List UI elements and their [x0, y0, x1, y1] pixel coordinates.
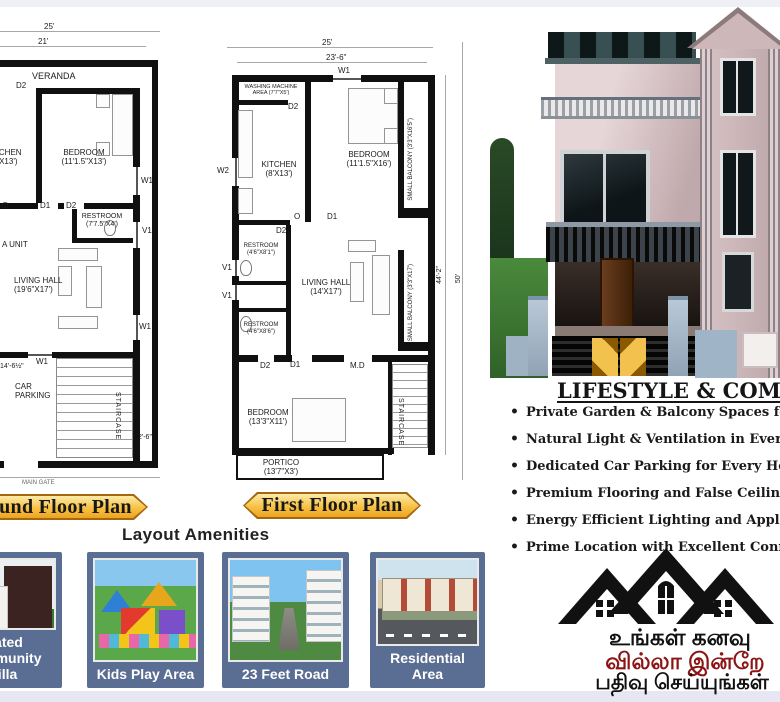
wall — [232, 281, 288, 285]
room-label-small-balcony-1: SMALL BALCONY (3'3"X16'5") — [408, 118, 415, 201]
window-mullion — [736, 150, 738, 238]
room-label-bedroom-2: BEDROOM (13'3"X11') — [238, 408, 298, 426]
dim-label: 2'-6" — [138, 434, 152, 442]
marker-w1: W1 — [36, 357, 48, 366]
pillow — [384, 88, 398, 104]
compound-wall — [506, 336, 530, 376]
bullet-icon: • — [510, 458, 526, 474]
apartment-block — [306, 570, 343, 642]
room-label-restroom: RESTROOM (7'7.5"X4') — [74, 213, 130, 229]
gate-gold-panel — [592, 338, 618, 376]
marker-w1: W1 — [141, 176, 153, 185]
dim-line — [462, 42, 463, 480]
sofa — [58, 316, 98, 329]
lifestyle-bullet: Private Garden & Balcony Spaces for Ever… — [526, 405, 780, 420]
residential-area-photo — [376, 558, 479, 646]
wall — [36, 88, 42, 209]
balcony-railing — [546, 222, 702, 262]
pillow — [384, 128, 398, 144]
wall — [232, 100, 288, 105]
road-markings — [386, 634, 476, 637]
dim-line — [0, 46, 146, 47]
wall — [232, 308, 288, 312]
wall — [398, 82, 404, 208]
ground-floor-banner: Ground Floor Plan — [0, 494, 148, 520]
amenity-card-kids-play: Kids Play Area — [87, 552, 204, 688]
lifestyle-bullet: Natural Light & Ventilation in Every Roo… — [526, 432, 780, 447]
walk-path — [278, 608, 300, 650]
dim-label: 50' — [455, 274, 463, 283]
first-floor-banner: First Floor Plan — [243, 492, 421, 519]
room-label-restroom-1: RESTROOM (4'6"X8'1") — [238, 243, 284, 257]
toilet — [240, 260, 252, 276]
roof-edge — [545, 58, 701, 64]
lifestyle-heading: LIFESTYLE & COMFORT — [557, 378, 780, 403]
promo-line-3: பதிவு செய்யுங்கள் — [552, 671, 780, 697]
dim-label: 44'-2" — [436, 266, 444, 284]
wall — [428, 75, 435, 455]
side-table — [96, 94, 110, 108]
gate-pillar — [668, 296, 688, 376]
sofa — [372, 255, 390, 315]
bullet-icon: • — [510, 512, 526, 528]
wall — [398, 250, 404, 342]
wall — [0, 60, 158, 67]
villa-building — [4, 566, 52, 630]
gate-gap — [4, 461, 38, 468]
amenity-card-label: Residential Area — [376, 646, 479, 682]
marker-d2: D2 — [16, 81, 26, 90]
amenity-card-label: Gated Community Villa — [0, 630, 56, 682]
window-v1 — [133, 222, 140, 248]
dim-label: 23'-6" — [326, 53, 346, 62]
lifestyle-bullet: Premium Flooring and False Ceiling Inter… — [526, 486, 780, 501]
bullet-icon: • — [510, 539, 526, 555]
sofa — [86, 266, 102, 308]
pergola-roof — [548, 32, 696, 60]
window-mullion — [736, 58, 738, 116]
bed — [112, 94, 133, 156]
kitchen-sink — [238, 188, 253, 214]
marker-d2: D2 — [288, 102, 298, 111]
tower-window — [720, 58, 756, 116]
sofa — [58, 248, 98, 261]
marker-d1: D1 — [327, 212, 337, 221]
lifestyle-bullet: Dedicated Car Parking for Every Home — [526, 459, 780, 474]
room-label-restroom-2: RESTROOM (4'6"X8'6") — [238, 322, 284, 336]
villa-building — [0, 586, 8, 630]
banner-label: First Floor Plan — [261, 494, 402, 517]
marker-o: O — [2, 201, 8, 210]
window-v1 — [232, 284, 239, 300]
dim-line — [0, 477, 160, 478]
house-roofs-logo — [552, 546, 780, 626]
marker-md: M.D — [350, 361, 365, 370]
marker-w1: W1 — [338, 66, 350, 75]
tower-window — [720, 150, 756, 238]
room-label-kitchen: KITCHEN (8'X13') — [0, 148, 34, 166]
banner-label: Ground Floor Plan — [0, 496, 132, 519]
sofa — [348, 240, 376, 252]
room-label-living-hall: LIVING HALL (19'6"X17') — [14, 276, 72, 294]
flyer-canvas: 25' 21' VERANDA KITCHEN (8'X13 — [0, 0, 780, 702]
marker-v1: V1 — [222, 263, 232, 272]
twentythree-feet-road-photo — [228, 558, 343, 662]
bullet-icon: • — [510, 485, 526, 501]
room-label-pooja-unit: A UNIT — [2, 240, 28, 249]
room-label-bedroom: BEDROOM (11'1.5"X13') — [48, 148, 120, 166]
marker-w2: W2 — [217, 166, 229, 175]
marker-w1: W1 — [139, 322, 151, 331]
pediment — [692, 13, 780, 49]
gated-community-villa-photo — [0, 558, 56, 630]
dim-line — [0, 31, 160, 32]
top-bar — [0, 0, 780, 7]
hedge — [382, 612, 479, 620]
dim-label: 25' — [322, 38, 332, 47]
amenity-card-label: 23 Feet Road — [228, 662, 343, 682]
amenity-card-road: 23 Feet Road — [222, 552, 349, 688]
kids-play-area-photo — [93, 558, 198, 662]
room-label-portico: PORTICO (13'7"X3') — [248, 458, 314, 476]
room-label-car-parking: CAR PARKING — [15, 382, 59, 400]
dim-label: 21' — [38, 37, 48, 46]
climber — [159, 610, 185, 634]
marker-d2: D2 — [66, 201, 76, 210]
marker-o: O — [294, 212, 300, 221]
main-gate-label: MAIN GATE — [22, 480, 55, 487]
slide — [121, 608, 155, 634]
entry-door — [600, 258, 634, 330]
bullet-icon: • — [510, 404, 526, 420]
wall — [286, 225, 291, 355]
amenities-heading: Layout Amenities — [122, 525, 269, 545]
dim-label: 25' — [44, 22, 54, 31]
tower-base — [695, 330, 737, 378]
room-label-washing-area: WASHING MACHINE AREA (7'7"X5') — [240, 84, 302, 97]
wall — [152, 60, 158, 468]
room-label-living-hall: LIVING HALL (14'X17') — [294, 278, 358, 296]
lifestyle-bullet: Energy Efficient Lighting and Appliances — [526, 513, 780, 528]
room-label-staircase: STAIRCASE — [113, 392, 121, 440]
dim-line — [445, 75, 446, 455]
play-canopy — [141, 582, 177, 606]
marker-v1: V1 — [222, 291, 232, 300]
amenity-card-label: Kids Play Area — [93, 662, 198, 682]
amenity-card-gated-villa: Gated Community Villa — [0, 552, 62, 688]
room-label-staircase: STAIRCASE — [396, 398, 404, 446]
room-label-bedroom: BEDROOM (11'1.5"X16') — [330, 150, 408, 168]
dim-label: 14'-6½" — [0, 363, 24, 371]
apartment-block — [232, 576, 270, 642]
pilaster — [768, 45, 780, 378]
room-label-kitchen: KITCHEN (8'X13') — [256, 160, 302, 178]
pilaster — [700, 45, 712, 378]
marker-d2: D2 — [260, 361, 270, 370]
kitchen-counter — [238, 110, 253, 178]
bed — [292, 398, 346, 442]
marker-d1: D1 — [290, 360, 300, 369]
amenity-card-residential: Residential Area — [370, 552, 485, 688]
window-w1 — [133, 167, 140, 195]
wall — [133, 88, 140, 461]
wall — [232, 355, 239, 455]
bullet-icon: • — [510, 431, 526, 447]
gate-pillar — [528, 296, 548, 376]
staircase-steps — [56, 358, 133, 458]
window-v1 — [232, 260, 239, 276]
room-label-small-balcony-2: SMALL BALCONY (3'3"X17') — [408, 264, 415, 341]
marker-v1: V1 — [142, 226, 152, 235]
tower-window — [722, 252, 754, 312]
wall — [305, 80, 311, 222]
dentil-molding — [541, 97, 701, 119]
marker-d2: D2 — [276, 226, 286, 235]
wall — [232, 220, 290, 225]
row-houses — [382, 578, 479, 612]
room-label-veranda: VERANDA — [32, 71, 76, 81]
play-mat — [99, 634, 198, 648]
wall-panel — [742, 332, 778, 368]
gate-gold-panel — [620, 338, 646, 376]
window-w1 — [333, 75, 361, 82]
wall — [72, 238, 133, 243]
marker-d1: D1 — [40, 201, 50, 210]
